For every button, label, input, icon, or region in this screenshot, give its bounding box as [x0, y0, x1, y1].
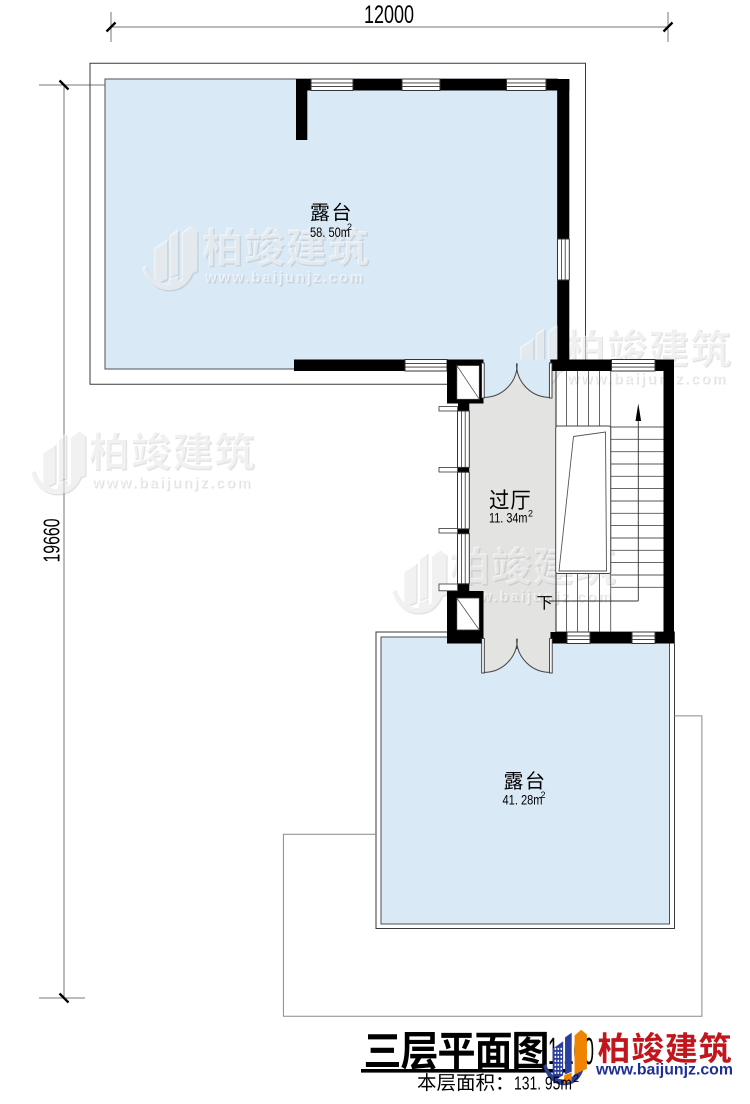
svg-text:2: 2 [573, 1073, 579, 1085]
svg-text:58. 50m: 58. 50m [310, 225, 350, 240]
svg-text:2: 2 [528, 509, 533, 519]
svg-text:19660: 19660 [39, 519, 65, 563]
svg-text:12000: 12000 [364, 1, 414, 29]
svg-text:41. 28m: 41. 28m [503, 793, 543, 808]
svg-text:131. 95m: 131. 95m [514, 1074, 572, 1094]
svg-text:www.baijunjz.com: www.baijunjz.com [91, 474, 252, 491]
svg-text:www.baijunjz.com: www.baijunjz.com [204, 269, 365, 286]
svg-text:www.baijunjz.com: www.baijunjz.com [566, 370, 727, 387]
svg-text:www.baijunjz.com: www.baijunjz.com [595, 1062, 733, 1079]
svg-text:2: 2 [541, 790, 546, 800]
svg-text:2: 2 [347, 222, 352, 232]
svg-text:11. 34m: 11. 34m [489, 511, 528, 526]
